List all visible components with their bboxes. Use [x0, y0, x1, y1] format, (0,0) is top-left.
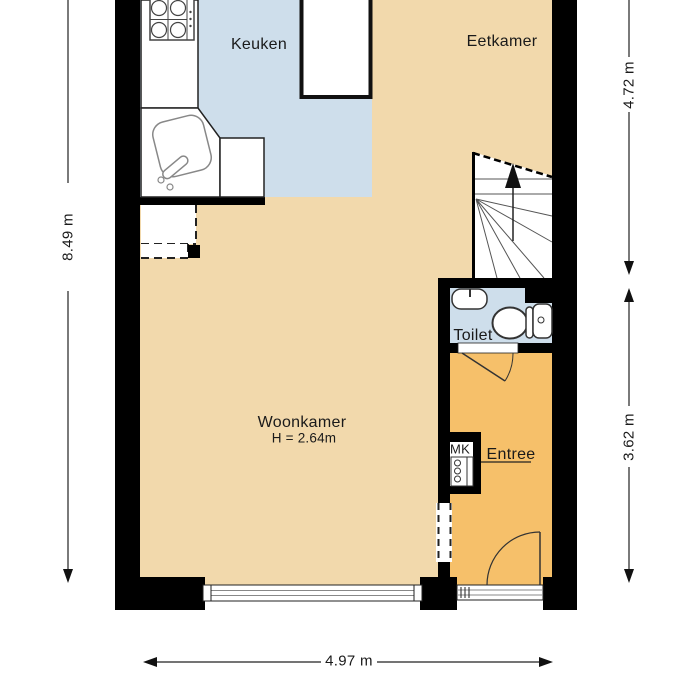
- floorplan-canvas: Keuken Eetkamer Woonkamer H = 2.64m Toil…: [0, 0, 700, 700]
- wall-left: [115, 0, 140, 610]
- dimension-label-left: 8.49 m: [61, 213, 76, 261]
- arrow-down-icon: [63, 569, 73, 583]
- window-frame: [203, 585, 422, 601]
- arrow-down-icon: [624, 569, 634, 583]
- arrow-down-icon: [624, 261, 634, 275]
- meter-dial-icon: [455, 460, 461, 466]
- wall-right: [552, 0, 577, 610]
- dashed-cupboard: [141, 205, 200, 258]
- window-post: [203, 585, 211, 601]
- dimension-label-right-top: 4.72 m: [622, 61, 637, 109]
- room-label-entree: Entree: [487, 447, 536, 463]
- front-door-sill: [457, 585, 543, 600]
- kitchen-appliance: [220, 138, 264, 197]
- floorplan-drawing: [0, 0, 700, 700]
- stove-knob-icon: [189, 11, 191, 13]
- meter-panel: [467, 457, 473, 486]
- room-label-meterkast: MK: [450, 443, 470, 456]
- arrow-left-icon: [143, 657, 157, 667]
- dimension-label-bottom: 4.97 m: [325, 654, 373, 669]
- room-label-eetkamer: Eetkamer: [467, 34, 538, 50]
- faucet-knob-icon: [167, 184, 173, 190]
- arrow-up-icon: [624, 288, 634, 302]
- toilet-cistern-icon: [526, 307, 533, 338]
- dimension-label-right-bottom: 3.62 m: [622, 413, 637, 461]
- room-label-keuken: Keuken: [231, 37, 287, 53]
- room-label-woonkamer: Woonkamer: [258, 415, 347, 431]
- dashed-cupboard-step: [141, 244, 188, 258]
- kitchen-island: [302, 0, 371, 97]
- arrow-right-icon: [539, 657, 553, 667]
- wall-entree-left-lower: [438, 562, 450, 577]
- wall-bottom-left-corner: [115, 577, 205, 610]
- wall-bottom-right-corner: [543, 577, 577, 610]
- living-entree-opening: [436, 503, 452, 562]
- stair-side-wall: [472, 152, 475, 278]
- room-label-toilet: Toilet: [453, 328, 492, 344]
- meter-dial-icon: [455, 476, 461, 482]
- wall-duct-under-stairs: [525, 278, 552, 303]
- wall-kitchen-bottom: [140, 197, 265, 205]
- faucet-knob-icon: [158, 177, 164, 183]
- ceiling-height-label: H = 2.64m: [272, 431, 336, 445]
- stove-knob-icon: [189, 25, 191, 27]
- wall-stub: [188, 245, 200, 258]
- living-room-window: [203, 585, 422, 601]
- basin-drain-icon: [538, 317, 544, 323]
- stove-icon: [150, 0, 194, 40]
- toilet-bowl-icon: [493, 308, 528, 339]
- stove-knob-icon: [189, 18, 191, 20]
- window-post: [414, 585, 422, 601]
- toilet-door-opening: [458, 343, 518, 353]
- meter-dial-icon: [455, 468, 461, 474]
- dashed-cupboard-body: [141, 205, 196, 244]
- wall-bottom-pier: [420, 577, 457, 610]
